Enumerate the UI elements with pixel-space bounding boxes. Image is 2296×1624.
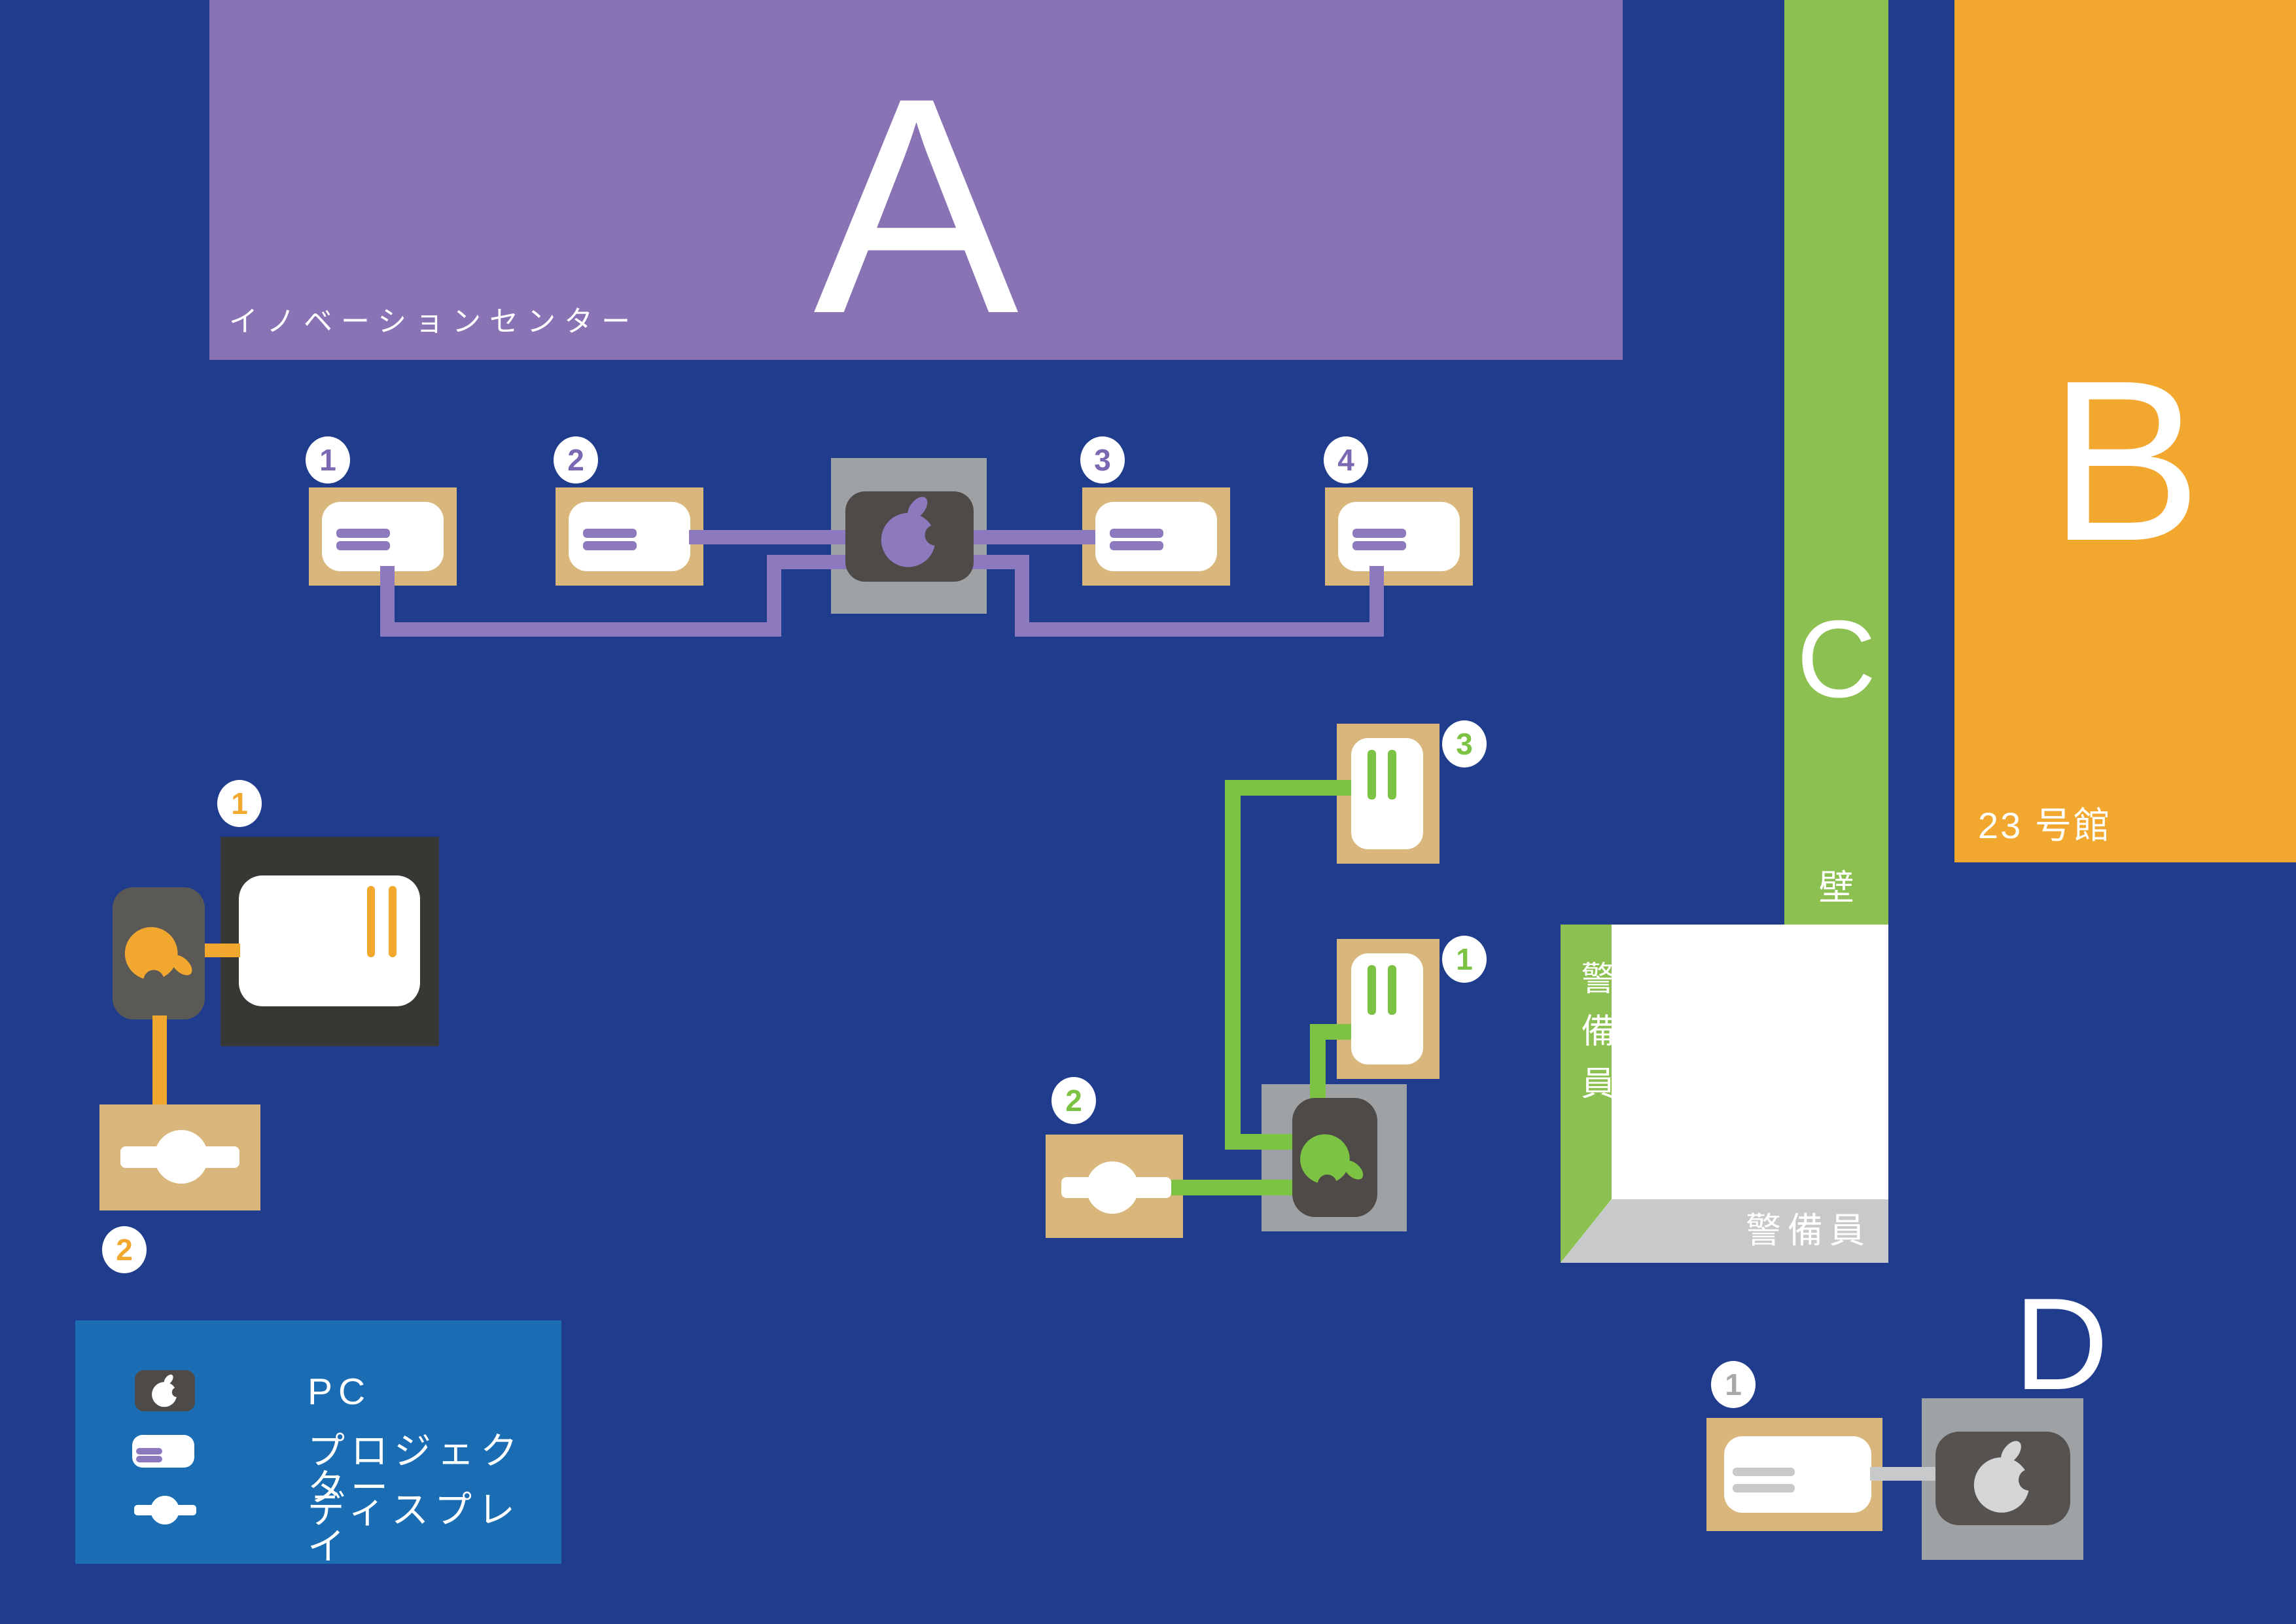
monitor-o1 <box>221 837 439 1046</box>
cable-segment <box>205 944 240 957</box>
cable-segment <box>1369 566 1384 637</box>
security-guard-label-left: 警備員 <box>1561 934 1612 1144</box>
corridor-c-letter: C <box>1784 604 1888 714</box>
projector-a3 <box>1082 487 1230 586</box>
badge-projector-g3: 3 <box>1442 720 1487 768</box>
badge-monitor-o1: 1 <box>217 780 262 827</box>
display-icon-dot <box>1086 1161 1139 1214</box>
projector-stripe <box>1110 541 1163 550</box>
projector-icon <box>1724 1436 1871 1513</box>
projector-stripe <box>136 1448 162 1455</box>
apple-logo-icon <box>1971 1439 2034 1515</box>
cable-segment <box>380 566 395 637</box>
projector-icon <box>1338 502 1460 571</box>
projector-icon <box>322 502 444 571</box>
cable-segment <box>1015 622 1384 637</box>
monitor-screen <box>239 875 420 1006</box>
cable-segment <box>1225 780 1241 1150</box>
apple-logo-icon <box>120 922 197 988</box>
projector-stripe <box>1368 965 1376 1015</box>
badge-projector-a2: 2 <box>554 436 598 484</box>
projector-stripe <box>1733 1468 1795 1476</box>
projector-icon <box>1351 738 1423 849</box>
building-b: B 23 号館 <box>1954 0 2296 862</box>
floor-map-canvas: A イノベーションセンター B 23 号館 C 壁 警備員 警備員 <box>0 0 2296 1624</box>
building-a-name: イノベーションセンター <box>229 308 639 336</box>
badge-number: 3 <box>1094 442 1111 478</box>
badge-number: 4 <box>1337 442 1354 478</box>
room-d-letter: D <box>2014 1279 2108 1410</box>
projector-stripe <box>1368 750 1376 800</box>
badge-number: 3 <box>1456 726 1473 762</box>
projector-stripe <box>136 1456 162 1462</box>
projector-stripe <box>1733 1484 1795 1492</box>
badge-projector-a1: 1 <box>306 436 350 484</box>
projector-stripe <box>1388 965 1396 1015</box>
projector-stripe <box>1110 529 1163 538</box>
monitor-stripe <box>367 886 375 957</box>
monitor-stripe <box>389 886 397 957</box>
badge-number: 2 <box>567 442 584 478</box>
badge-display-g2: 2 <box>1051 1077 1096 1124</box>
projector-stripe <box>336 529 390 538</box>
display-o2 <box>99 1104 260 1210</box>
projector-g1 <box>1337 939 1439 1079</box>
apple-logo-icon <box>879 495 940 570</box>
badge-display-o2: 2 <box>102 1226 147 1273</box>
legend-pc-label: PC <box>308 1371 371 1413</box>
cable-segment <box>1171 1180 1302 1195</box>
projector-stripe <box>336 541 390 550</box>
projector-g3 <box>1337 724 1439 864</box>
legend-projector-icon <box>132 1435 194 1468</box>
legend-pc-icon <box>135 1370 195 1411</box>
projector-stripe <box>1388 750 1396 800</box>
badge-number: 1 <box>231 786 248 821</box>
legend-display-label: ディスプレイ <box>308 1492 561 1565</box>
building-b-letter: B <box>1954 347 2296 576</box>
badge-projector-g1: 1 <box>1442 936 1487 983</box>
apple-logo-icon <box>150 1374 179 1408</box>
cable-segment <box>1225 1134 1303 1150</box>
projector-icon <box>1095 502 1217 571</box>
projector-stripe <box>583 541 637 550</box>
security-guard-label-bottom: 警備員 <box>1675 1208 1871 1254</box>
wall-label: 壁 <box>1784 870 1888 906</box>
badge-number: 2 <box>1065 1083 1082 1118</box>
badge-projector-a3: 3 <box>1080 436 1125 484</box>
projector-a4 <box>1325 487 1473 586</box>
badge-projector-d1: 1 <box>1711 1361 1756 1408</box>
projector-icon <box>1351 953 1423 1065</box>
cable-segment <box>1225 780 1351 796</box>
legend-display-icon-dot <box>150 1496 179 1525</box>
apple-logo-icon <box>1295 1130 1368 1192</box>
cable-segment <box>152 1015 167 1107</box>
badge-number: 2 <box>116 1232 133 1267</box>
corridor-c: C 壁 <box>1784 0 1888 925</box>
display-icon-dot <box>154 1130 208 1184</box>
projector-stripe <box>583 529 637 538</box>
badge-number: 1 <box>1725 1367 1742 1402</box>
cable-segment <box>1870 1467 1937 1481</box>
projector-icon <box>569 502 690 571</box>
projector-d1 <box>1706 1418 1882 1531</box>
cable-segment <box>1310 1024 1326 1106</box>
legend: PC プロジェクター ディスプレイ <box>75 1320 561 1564</box>
projector-stripe <box>1352 541 1406 550</box>
display-g2 <box>1046 1135 1183 1238</box>
cable-segment <box>380 622 781 637</box>
projector-a2 <box>556 487 703 586</box>
badge-number: 1 <box>319 442 336 478</box>
projector-stripe <box>1352 529 1406 538</box>
badge-projector-a4: 4 <box>1324 436 1368 484</box>
badge-number: 1 <box>1456 942 1473 977</box>
building-b-name: 23 号館 <box>1978 807 2112 844</box>
building-a: A イノベーションセンター <box>209 0 1623 360</box>
